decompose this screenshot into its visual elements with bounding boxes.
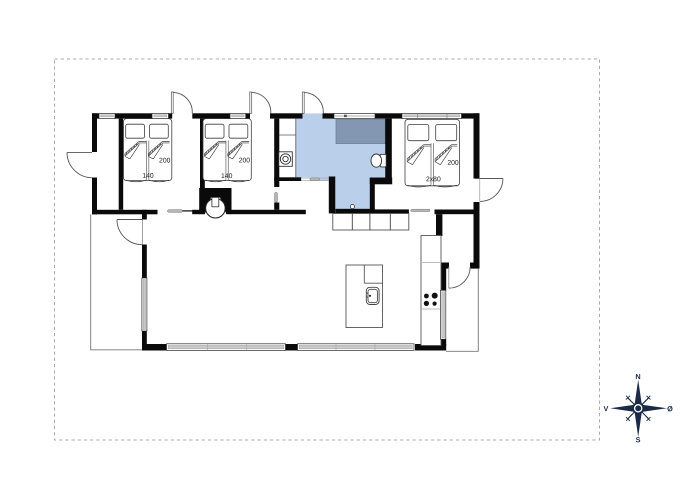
svg-text:Ø: Ø: [667, 404, 673, 413]
svg-text:200: 200: [239, 157, 251, 164]
svg-text:200: 200: [447, 160, 459, 167]
svg-text:200: 200: [159, 157, 171, 164]
svg-text:140: 140: [142, 173, 154, 180]
svg-text:S: S: [636, 435, 641, 444]
svg-text:N: N: [635, 372, 640, 381]
svg-text:2x80: 2x80: [426, 176, 441, 183]
svg-text:V: V: [604, 404, 609, 413]
svg-text:140: 140: [221, 173, 233, 180]
